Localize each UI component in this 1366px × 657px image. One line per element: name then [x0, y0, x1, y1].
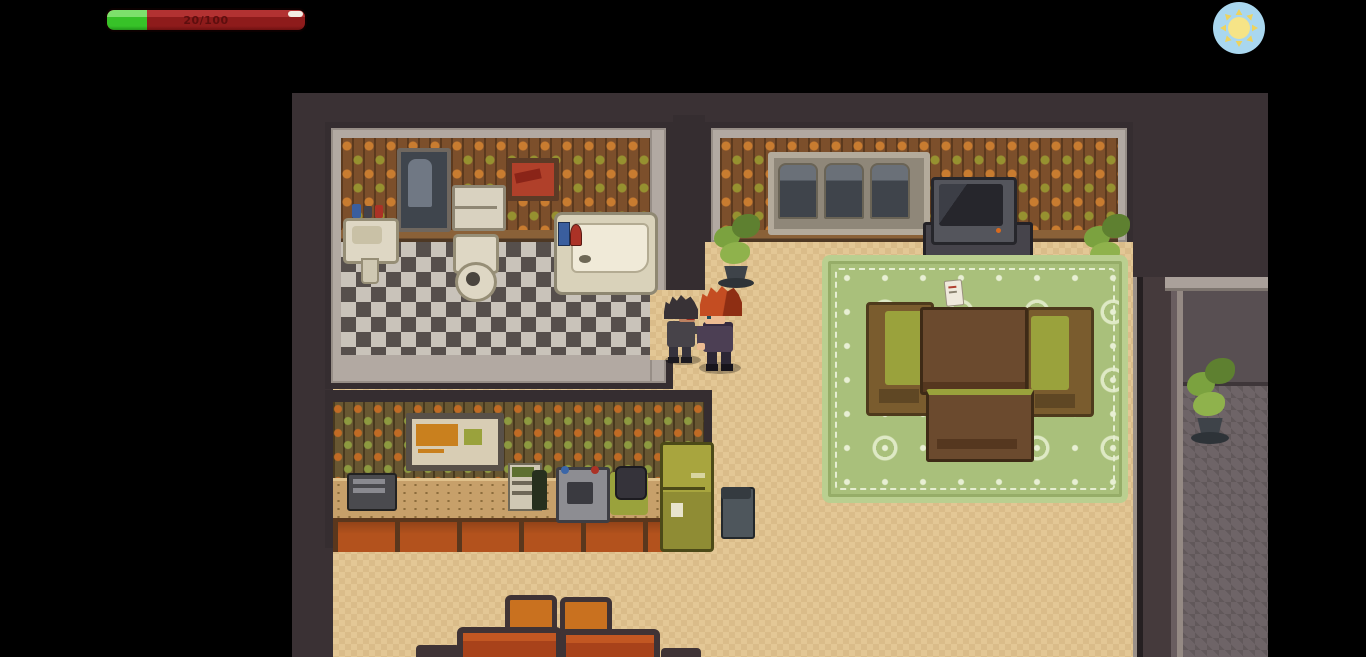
- pot-stand: [610, 472, 648, 515]
- wall-cabinet: [452, 185, 506, 231]
- sink-basin: [352, 226, 382, 244]
- picture-art: [514, 168, 542, 183]
- chair-back-right: [560, 629, 660, 657]
- npc-body: [667, 321, 695, 347]
- health-bar-label: 20/100: [107, 10, 305, 30]
- kitchen-cabinets: [333, 518, 704, 552]
- chair-back-left: [457, 627, 562, 657]
- cabinet-divider: [455, 206, 497, 209]
- tv-screen: [939, 184, 1003, 226]
- chair-corner-right: [661, 648, 701, 657]
- hallway-potted-plant: [1183, 350, 1238, 455]
- gray-bottle: [364, 206, 372, 218]
- blue-bottle: [352, 204, 361, 218]
- armchair-cushion: [1031, 316, 1069, 390]
- framed-picture: [507, 158, 559, 201]
- toilet-bowl: [455, 262, 497, 302]
- armchair-base: [1035, 394, 1075, 408]
- bathroom-room: [325, 122, 673, 389]
- kitchen-room: [325, 390, 712, 548]
- bathtub-drain: [579, 255, 591, 263]
- triple-window: [768, 152, 930, 235]
- notice-strip: [418, 449, 444, 453]
- npc-shoe: [668, 357, 679, 363]
- room-divider-wall: [673, 115, 705, 290]
- player-jacket: [703, 322, 733, 352]
- tub-toiletries: [558, 220, 582, 246]
- hallway-room: [1183, 291, 1268, 657]
- cooking-pot: [615, 466, 647, 500]
- mirror-glass: [408, 159, 432, 207]
- npc-hair: [664, 295, 698, 319]
- notice-paper-orange: [416, 424, 458, 446]
- player-red-hair: [695, 286, 743, 374]
- red-shampoo: [570, 224, 582, 246]
- armchair-cushion: [885, 311, 923, 385]
- bottle: [532, 470, 547, 510]
- wall-mirror: [397, 148, 451, 232]
- blue-shampoo: [558, 222, 570, 246]
- sink-pedestal: [361, 258, 379, 284]
- sun-icon: [1213, 2, 1265, 54]
- trash-can[interactable]: [721, 487, 755, 539]
- crt-tv[interactable]: [931, 177, 1017, 245]
- bathtub-basin: [571, 223, 649, 273]
- window-pane: [824, 163, 864, 219]
- health-bar: 20/100: [107, 10, 305, 30]
- player-shoe: [706, 364, 718, 371]
- red-bottle: [375, 205, 383, 218]
- armchair-base: [879, 389, 919, 403]
- notice-board[interactable]: [406, 413, 504, 471]
- potted-plant-left: [712, 208, 762, 292]
- player-arm: [697, 326, 707, 344]
- refrigerator[interactable]: [660, 442, 714, 552]
- player-shoe: [721, 364, 733, 371]
- player-hand: [697, 343, 705, 350]
- chair-corner-left: [416, 645, 460, 657]
- toilet-opening: [466, 272, 480, 286]
- hallway-divider-wall: [1133, 277, 1183, 657]
- dropped-note[interactable]: [944, 279, 965, 307]
- tv-led: [996, 228, 1001, 233]
- coffee-table: [920, 307, 1028, 395]
- day-indicator-button[interactable]: [1213, 2, 1265, 54]
- toaster: [347, 473, 397, 511]
- bench-base: [937, 439, 1017, 449]
- notice-paper-green: [464, 429, 482, 445]
- player-hair: [700, 286, 742, 316]
- pot-saucer: [1191, 432, 1229, 444]
- armchair-right: [1026, 307, 1094, 417]
- window-pane: [778, 163, 818, 219]
- hallway-top-frame: [1165, 277, 1268, 291]
- game-viewport[interactable]: [292, 93, 1268, 657]
- window-pane: [870, 163, 910, 219]
- npc-shoe: [681, 357, 692, 363]
- bench: [926, 389, 1034, 462]
- stove: [556, 467, 610, 523]
